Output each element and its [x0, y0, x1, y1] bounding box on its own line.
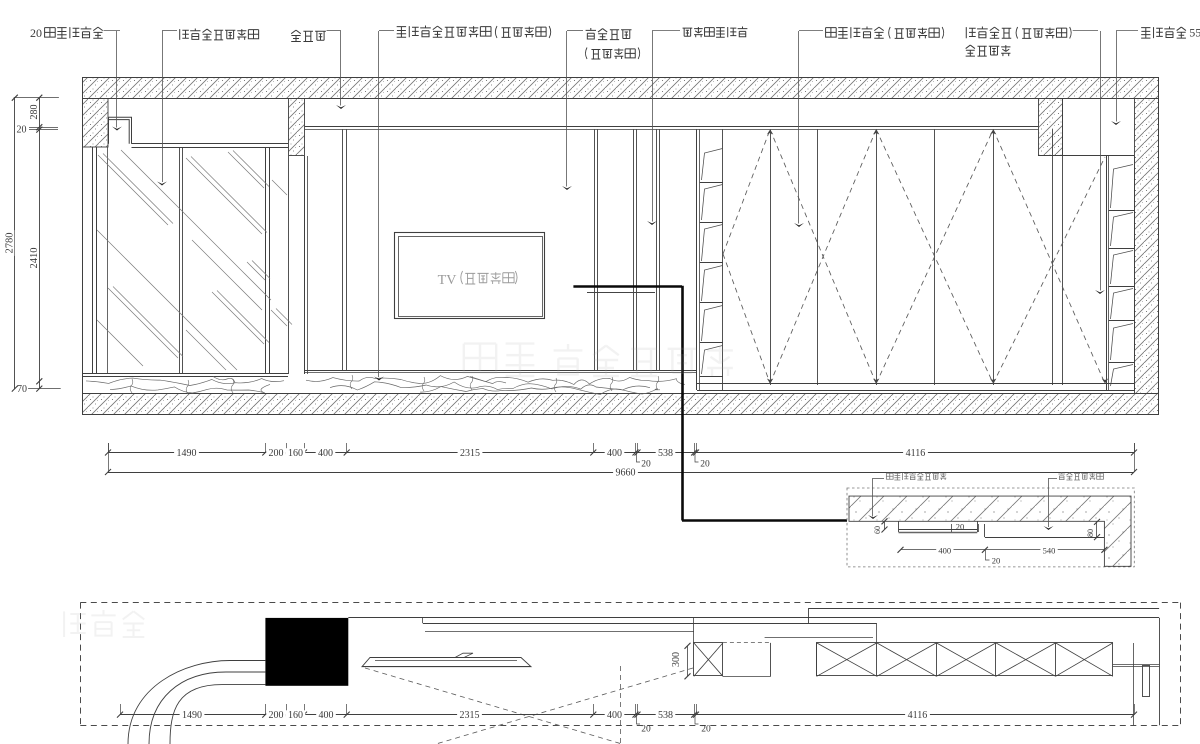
svg-text:538: 538: [658, 448, 673, 459]
svg-text:70: 70: [17, 384, 27, 395]
svg-text:280: 280: [29, 105, 40, 120]
svg-text:20: 20: [701, 725, 711, 735]
svg-text:1490: 1490: [177, 448, 197, 459]
svg-text:400: 400: [318, 448, 333, 459]
svg-text:1490: 1490: [182, 710, 202, 721]
svg-text:20: 20: [956, 522, 965, 532]
svg-text:200: 200: [269, 710, 284, 721]
svg-text:200: 200: [269, 448, 284, 459]
svg-text:300: 300: [671, 652, 682, 667]
svg-text:20: 20: [30, 26, 42, 40]
svg-text:400: 400: [938, 546, 951, 556]
svg-text:160: 160: [288, 710, 303, 721]
svg-text:540: 540: [1043, 546, 1056, 556]
svg-text:TV: TV: [438, 273, 457, 288]
svg-text:80: 80: [1086, 529, 1095, 537]
svg-text:20: 20: [17, 125, 27, 136]
svg-text:160: 160: [288, 448, 303, 459]
svg-text:20: 20: [641, 725, 651, 735]
svg-text:2315: 2315: [460, 448, 480, 459]
svg-text:2410: 2410: [29, 248, 40, 269]
svg-text:4116: 4116: [906, 448, 926, 459]
svg-text:550: 550: [1189, 26, 1200, 40]
svg-text:400: 400: [607, 710, 622, 721]
svg-text:400: 400: [607, 448, 622, 459]
svg-text:538: 538: [658, 710, 673, 721]
svg-text:20: 20: [992, 556, 1001, 566]
svg-text:2780: 2780: [5, 233, 16, 254]
svg-text:60: 60: [873, 526, 882, 534]
svg-text:4116: 4116: [908, 710, 928, 721]
svg-text:20: 20: [641, 460, 651, 470]
svg-text:20: 20: [700, 460, 710, 470]
svg-text:9660: 9660: [616, 468, 636, 479]
svg-text:400: 400: [319, 710, 334, 721]
svg-text:2315: 2315: [460, 710, 480, 721]
